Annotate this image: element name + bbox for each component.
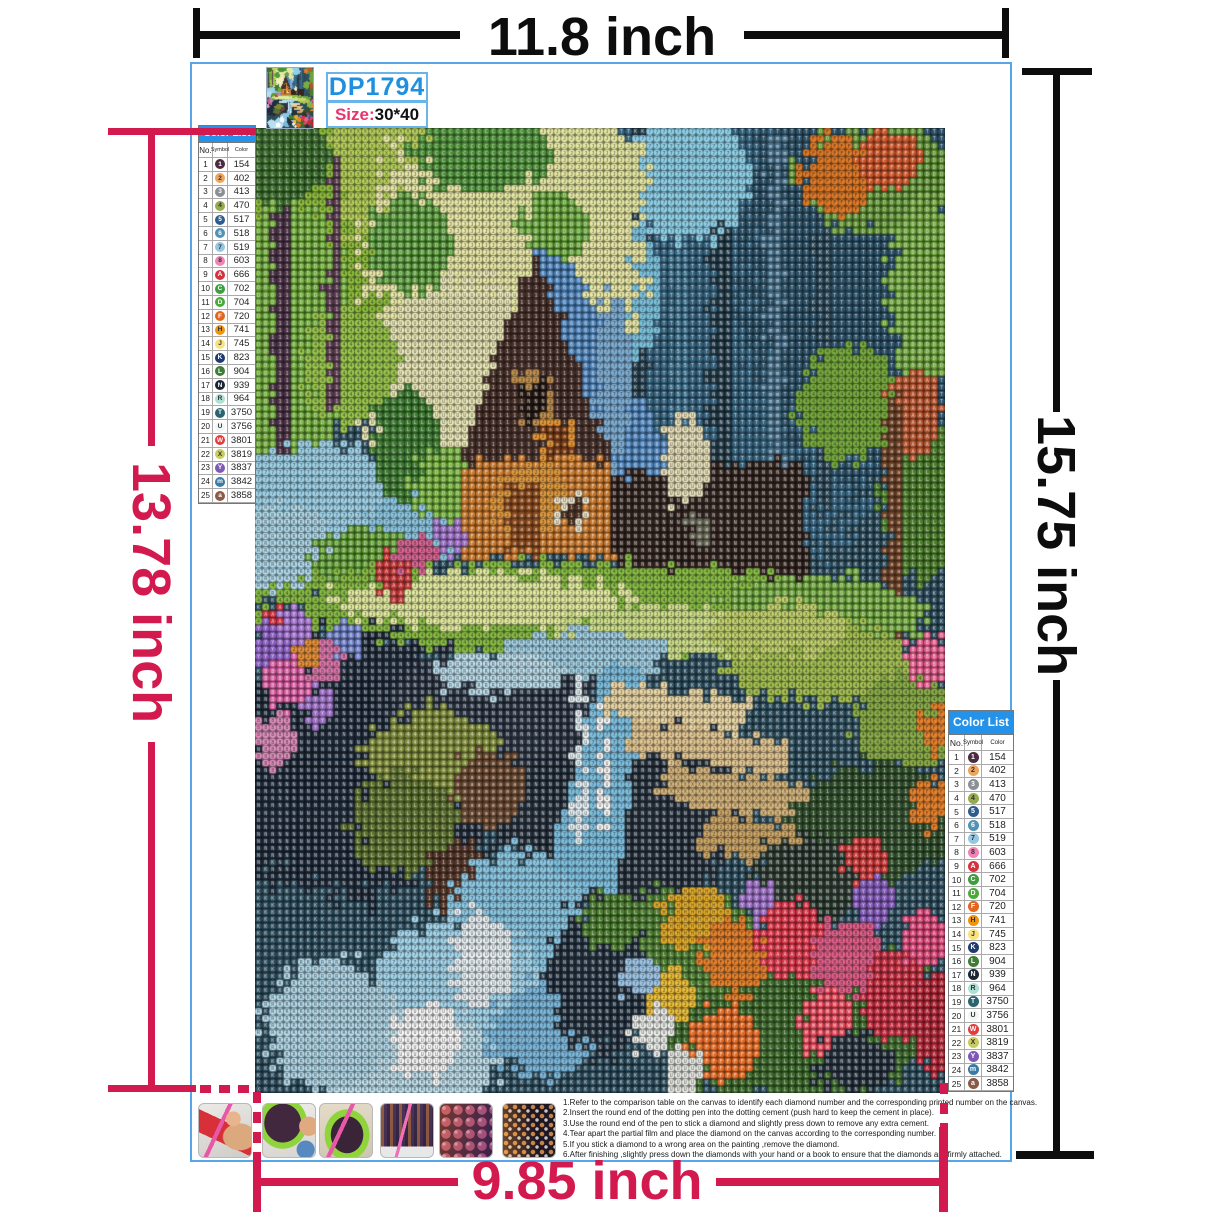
color-row: 23Y3837 [949,1050,1013,1064]
color-symbol: 4 [215,201,225,211]
dim-left-label: 13.78 inch [121,462,181,722]
dim-top-label: 11.8 inch [468,6,736,68]
color-symbol: W [215,435,225,445]
color-row: 88603 [949,846,1013,860]
color-row: 19T3750 [949,996,1013,1010]
color-symbol: J [215,339,225,349]
color-symbol: X [968,1037,979,1048]
diamond-painting-canvas [255,128,945,1093]
dim-bottom-right-cap [939,1127,948,1212]
color-symbol: C [215,284,225,294]
color-symbol: D [215,297,225,307]
color-row: 14J745 [949,928,1013,942]
color-row: 20U3756 [949,1009,1013,1023]
color-row: 12F720 [949,901,1013,915]
color-row: 25a3858 [199,489,255,503]
color-list-left: Color ListNo.SymbolColor1115422402334134… [198,125,256,504]
instruction-line: 2.Insert the round end of the dotting pe… [563,1108,1037,1118]
color-list-header: Color [228,143,255,158]
color-symbol: N [215,380,225,390]
color-symbol: N [968,969,979,980]
color-symbol: R [968,983,979,994]
color-row: 66518 [949,819,1013,833]
color-row: 15K823 [949,941,1013,955]
color-symbol: 1 [215,159,225,169]
color-row: 17N939 [199,379,255,393]
color-symbol: K [968,942,979,953]
color-row: 9A666 [199,268,255,282]
color-symbol: 2 [215,173,225,183]
color-symbol: U [215,422,225,432]
color-symbol: m [968,1064,979,1075]
dim-bottom-line-left [261,1178,458,1186]
color-row: 12F720 [199,310,255,324]
color-row: 16L904 [199,365,255,379]
color-row: 16L904 [949,955,1013,969]
color-symbol: X [215,449,225,459]
process-thumb-3 [319,1103,373,1158]
color-row: 21W3801 [949,1023,1013,1037]
process-thumb-4 [380,1103,434,1158]
color-symbol: L [215,366,225,376]
dim-bottom-label: 9.85 inch [456,1150,718,1212]
color-list-header: Color [982,735,1013,751]
color-symbol: L [968,956,979,967]
product-spec-image: 11.8 inch 15.75 inch 13.78 inch 9.85 inc… [0,0,1214,1214]
color-row: 23Y3837 [199,462,255,476]
color-row: 77519 [199,241,255,255]
color-row: 19T3750 [199,406,255,420]
artwork-thumbnail [266,67,314,129]
dim-right-bottom-cap [1016,1151,1094,1159]
color-symbol: 1 [968,752,979,763]
color-symbol: T [215,408,225,418]
dim-right-line-lower [1053,680,1060,1152]
color-symbol: a [215,491,225,501]
dim-left-dash-connector [200,1085,258,1093]
color-row: 77519 [949,833,1013,847]
product-size-box: Size: 30*40 [326,101,428,128]
color-symbol: 8 [215,256,225,266]
dim-bottom-left-cap [253,1160,261,1212]
color-symbol: Y [215,463,225,473]
color-row: 18R964 [199,393,255,407]
color-row: 33413 [949,778,1013,792]
dim-top-line-right [744,31,1004,39]
color-row: 55517 [199,213,255,227]
color-row: 11D704 [199,296,255,310]
color-symbol: H [968,915,979,926]
color-row: 13H741 [949,914,1013,928]
color-symbol: T [968,996,979,1007]
color-row: 15K823 [199,351,255,365]
color-symbol: A [968,861,979,872]
color-symbol: Y [968,1051,979,1062]
color-row: 25a3858 [949,1077,1013,1091]
color-row: 22402 [949,765,1013,779]
dim-bottom-line-right [716,1178,941,1186]
color-symbol: W [968,1024,979,1035]
color-row: 22X3819 [199,448,255,462]
color-symbol: F [215,311,225,321]
dim-left-line-upper [148,131,155,446]
color-symbol: 3 [968,779,979,790]
color-row: 11154 [949,751,1013,765]
color-symbol: F [968,901,979,912]
instruction-line: 3.Use the round end of the pen to stick … [563,1119,1037,1129]
color-symbol: U [968,1010,979,1021]
color-row: 24m3842 [949,1064,1013,1078]
color-symbol: 3 [215,187,225,197]
color-row: 88603 [199,255,255,269]
color-symbol: H [215,325,225,335]
dim-right-label: 15.75 inch [1026,415,1086,675]
size-label: Size: [335,105,375,125]
color-list-right: Color ListNo.SymbolColor1115422402334134… [948,710,1014,1092]
dim-left-top-cap [108,128,256,135]
color-symbol: 6 [215,228,225,238]
color-symbol: a [968,1078,979,1089]
color-list-title: Color List [949,711,1013,735]
color-symbol: 7 [968,833,979,844]
color-symbol: A [215,270,225,280]
process-thumb-2 [262,1103,316,1158]
color-row: 9A666 [949,860,1013,874]
color-list-header: Symbol [965,735,982,751]
dim-bottom-left-dash [253,1092,261,1162]
color-row: 11D704 [949,887,1013,901]
color-row: 10C702 [949,873,1013,887]
color-symbol: K [215,353,225,363]
color-symbol: R [215,394,225,404]
product-code-box: DP1794 [326,72,428,102]
color-row: 66518 [199,227,255,241]
color-row: 44470 [199,199,255,213]
dim-right-line-upper [1053,72,1060,412]
color-row: 11154 [199,158,255,172]
color-symbol: 7 [215,242,225,252]
color-symbol: 2 [968,765,979,776]
color-symbol: 4 [968,793,979,804]
color-row: 13H741 [199,324,255,338]
color-row: 17N939 [949,969,1013,983]
size-value: 30*40 [375,105,419,125]
color-symbol: 5 [968,806,979,817]
color-symbol: J [968,929,979,940]
color-row: 22X3819 [949,1036,1013,1050]
color-symbol: 8 [968,847,979,858]
color-symbol: 6 [968,820,979,831]
color-row: 10C702 [199,282,255,296]
instruction-line: 1.Refer to the comparison table on the c… [563,1098,1037,1108]
instruction-line: 4.Tear apart the partial film and place … [563,1129,1037,1139]
color-row: 22402 [199,172,255,186]
instruction-line: 5.If you stick a diamond to a wrong area… [563,1140,1037,1150]
color-row: 33413 [199,186,255,200]
product-code: DP1794 [329,73,425,102]
color-row: 21W3801 [199,434,255,448]
color-list-header: Symbol [213,143,228,158]
dim-left-line-lower [148,742,155,1087]
color-row: 14J745 [199,337,255,351]
color-row: 24m3842 [199,475,255,489]
dim-bottom-right-dash [940,1083,948,1129]
color-row: 44470 [949,792,1013,806]
dim-top-line-left [198,31,460,39]
color-symbol: m [215,477,225,487]
process-thumb-1 [198,1103,252,1158]
color-symbol: 5 [215,215,225,225]
color-symbol: D [968,888,979,899]
color-row: 20U3756 [199,420,255,434]
color-row: 18R964 [949,982,1013,996]
color-symbol: C [968,874,979,885]
color-row: 55517 [949,805,1013,819]
